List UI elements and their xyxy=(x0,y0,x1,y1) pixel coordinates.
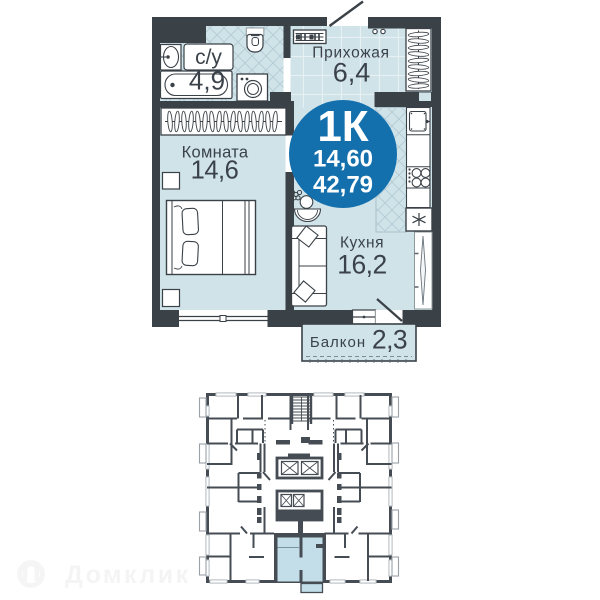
svg-text:42,79: 42,79 xyxy=(313,172,373,199)
svg-text:16,2: 16,2 xyxy=(337,250,387,280)
svg-text:6,4: 6,4 xyxy=(333,58,371,88)
svg-text:2,3: 2,3 xyxy=(372,325,407,355)
svg-text:1К: 1К xyxy=(317,102,368,151)
svg-text:14,6: 14,6 xyxy=(191,157,239,185)
svg-text:Домклик: Домклик xyxy=(65,561,191,589)
svg-text:14,60: 14,60 xyxy=(313,146,373,173)
svg-text:Балкон: Балкон xyxy=(310,334,366,351)
svg-text:4,9: 4,9 xyxy=(189,66,225,96)
